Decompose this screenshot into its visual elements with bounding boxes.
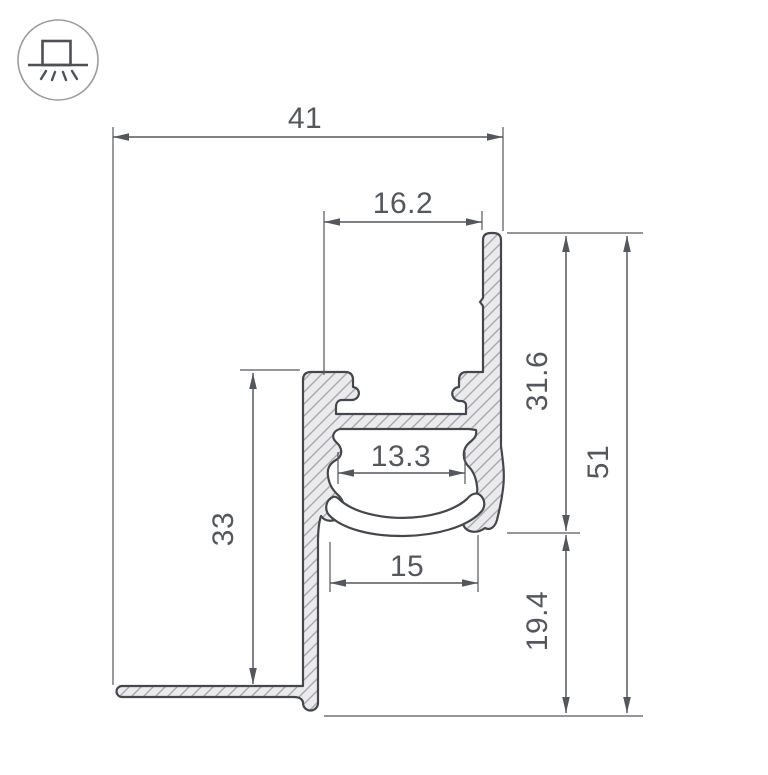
icon-circle	[18, 20, 98, 100]
dim-label-diffuser-width: 15	[390, 550, 424, 583]
icon-light-rays	[41, 71, 77, 80]
dim-label-left-body-height: 33	[207, 512, 240, 546]
dim-label-channel-width: 13.3	[371, 440, 431, 473]
drawing-svg: 41 16.2 13.3 15 31.6 51 19.4 33	[0, 0, 768, 775]
dim-label-lower-right-height: 19.4	[521, 591, 554, 651]
diffuser-lens	[326, 494, 484, 536]
technical-drawing: 41 16.2 13.3 15 31.6 51 19.4 33	[0, 0, 768, 775]
icon-profile-box	[43, 41, 71, 65]
dim-label-overall-width: 41	[288, 102, 322, 135]
dim-label-upper-right-height: 31.6	[521, 351, 554, 411]
dim-label-top-opening: 16.2	[373, 187, 433, 220]
profile-body-section	[117, 233, 504, 711]
dim-label-overall-height: 51	[582, 445, 615, 479]
surface-mount-icon	[18, 20, 98, 100]
